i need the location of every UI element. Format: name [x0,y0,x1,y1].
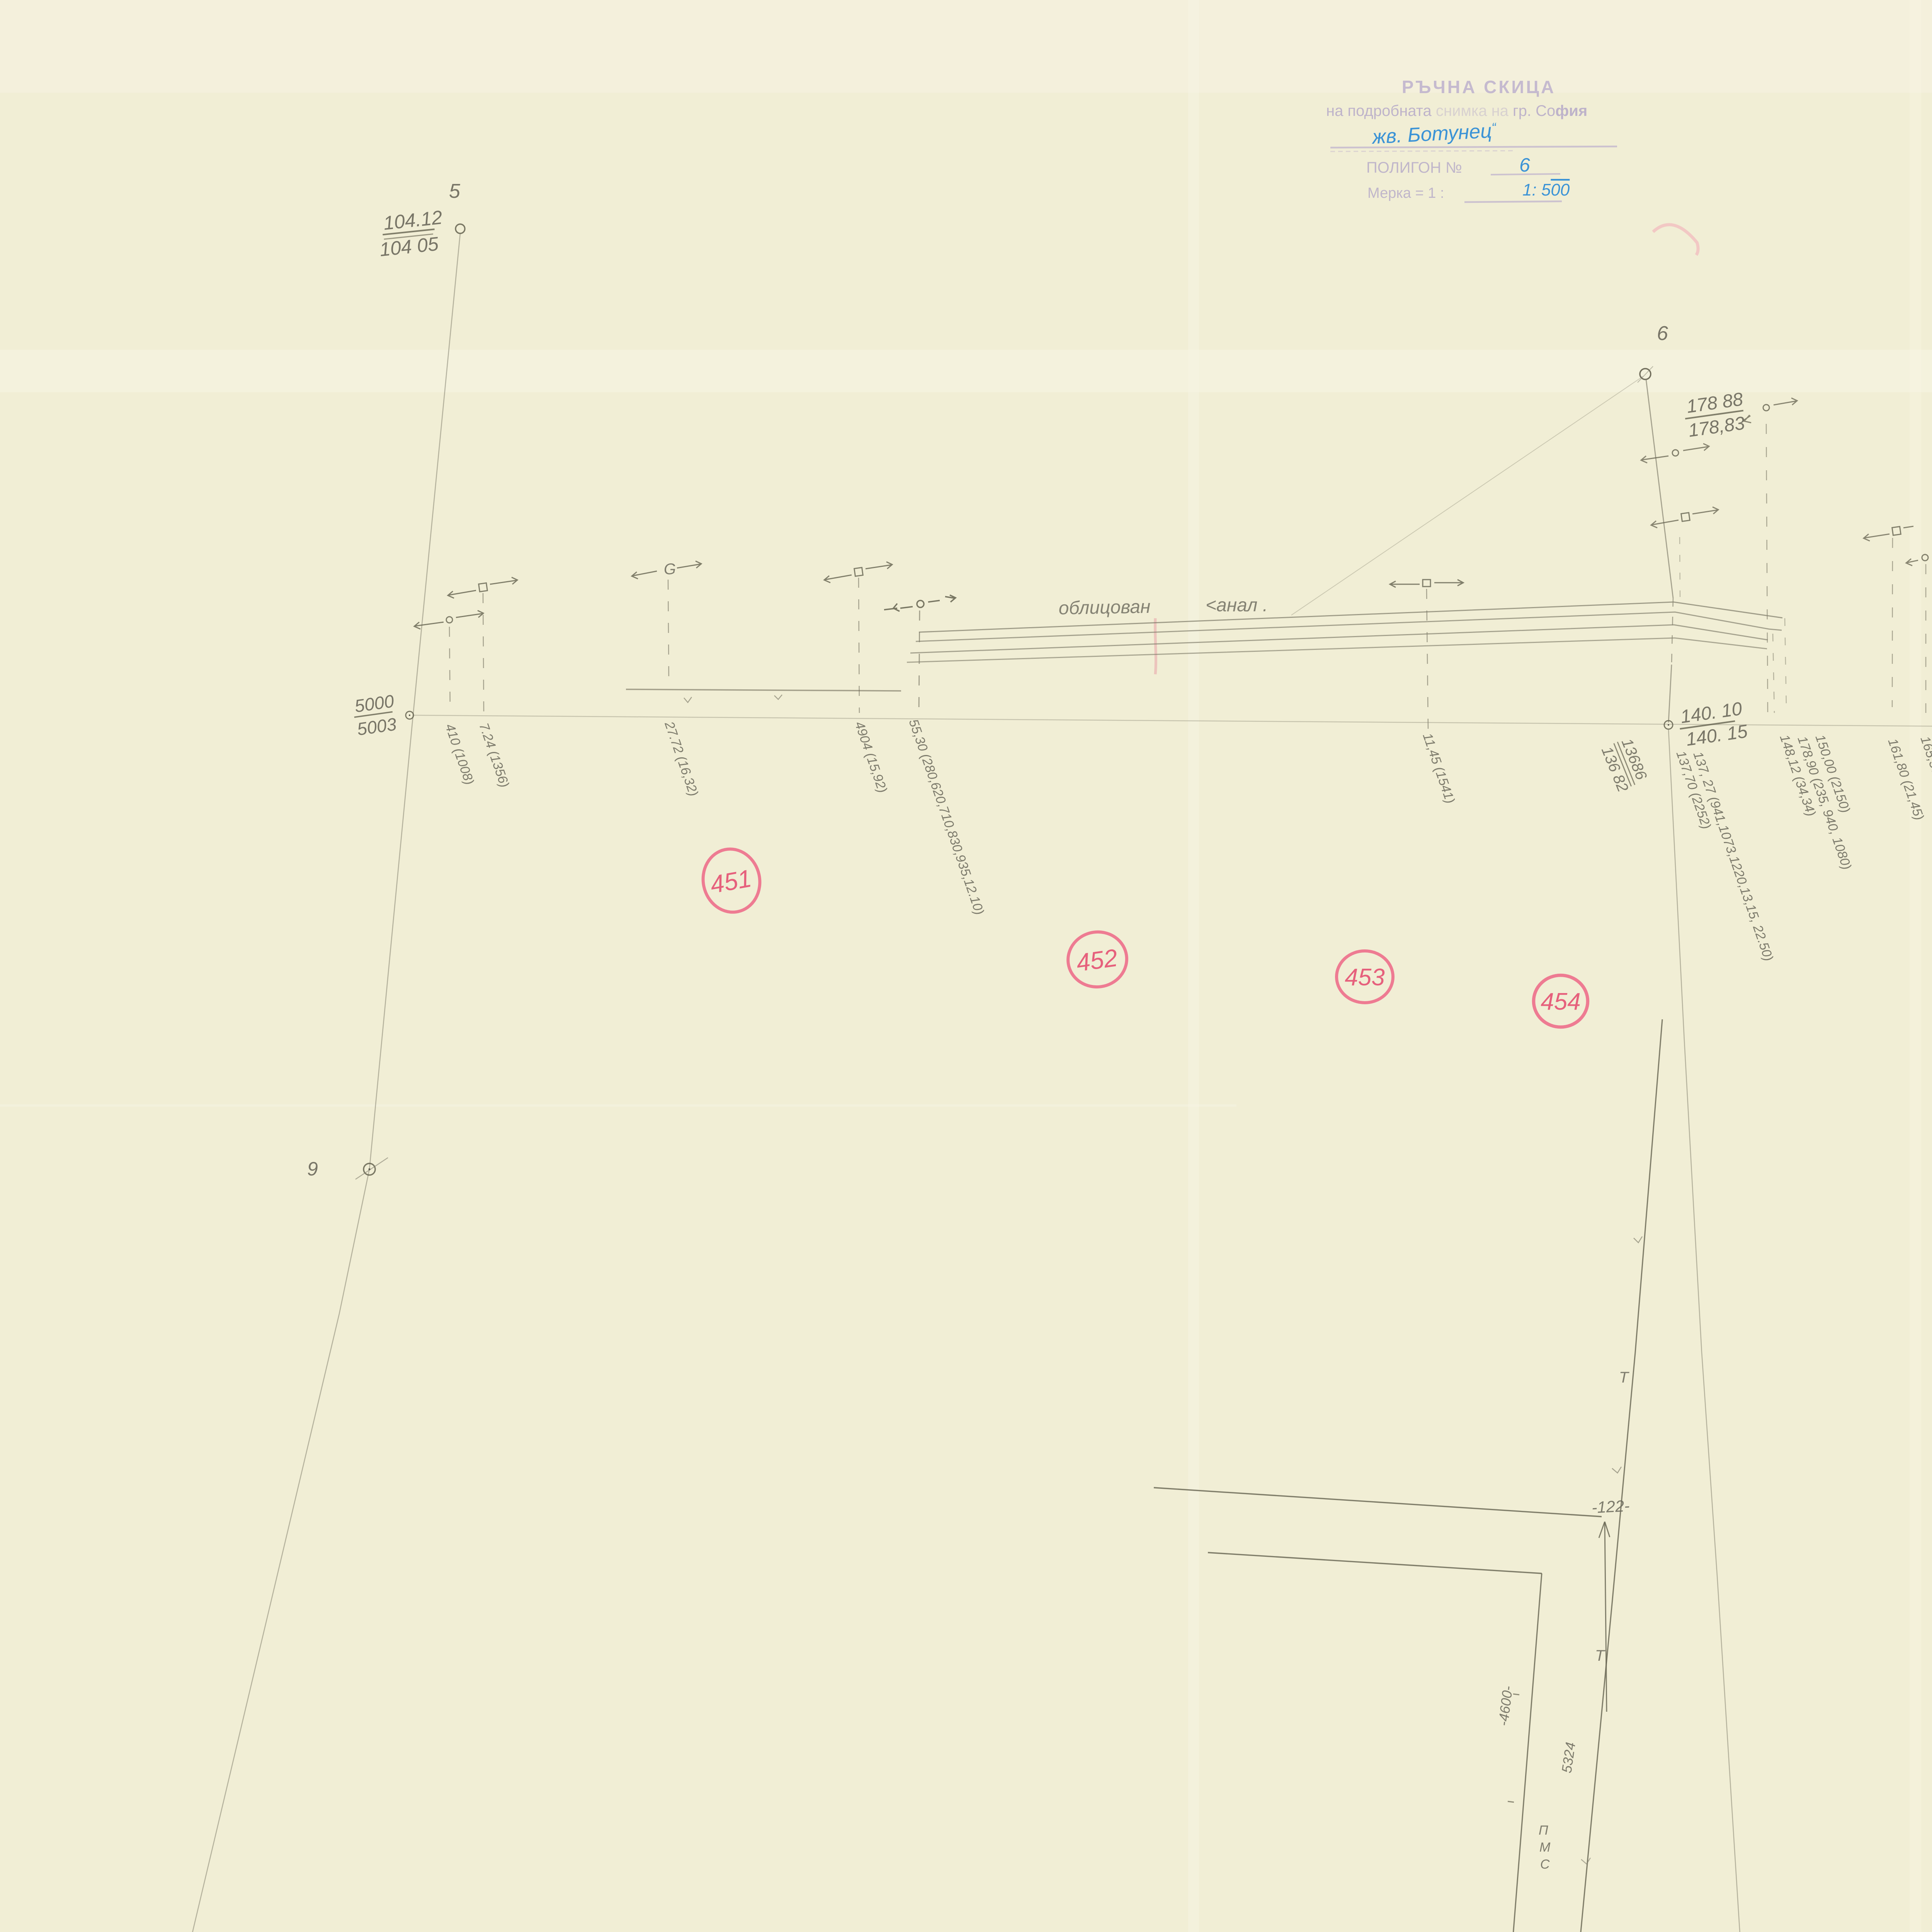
svg-text:9: 9 [307,1158,318,1180]
svg-text:облицован: облицован [1058,597,1151,619]
svg-text:T: T [1595,1647,1605,1664]
svg-text:454: 454 [1541,988,1580,1015]
svg-text:1: 500: 1: 500 [1522,180,1570,199]
svg-text:453: 453 [1345,964,1384,991]
svg-text:С: С [1540,1857,1550,1872]
svg-text:G: G [664,561,676,578]
svg-text:на подробната снимка на гр. Со: на подробната снимка на гр. София [1326,102,1587,119]
svg-text:452: 452 [1075,944,1119,977]
svg-text:Мерка = 1 :: Мерка = 1 : [1367,185,1444,201]
svg-text:П: П [1539,1823,1548,1838]
svg-text:5: 5 [449,180,461,202]
svg-text:T: T [1619,1369,1629,1386]
svg-text:РЪЧНА СКИЦА: РЪЧНА СКИЦА [1402,77,1556,97]
svg-text:М: М [1539,1840,1551,1855]
svg-text:6: 6 [1657,322,1668,345]
svg-text:-122-: -122- [1591,1497,1630,1517]
svg-text:˂анал .: ˂анал . [1206,595,1268,616]
svg-text:6: 6 [1519,154,1530,176]
svg-text:ПОЛИГОН №: ПОЛИГОН № [1366,159,1462,176]
